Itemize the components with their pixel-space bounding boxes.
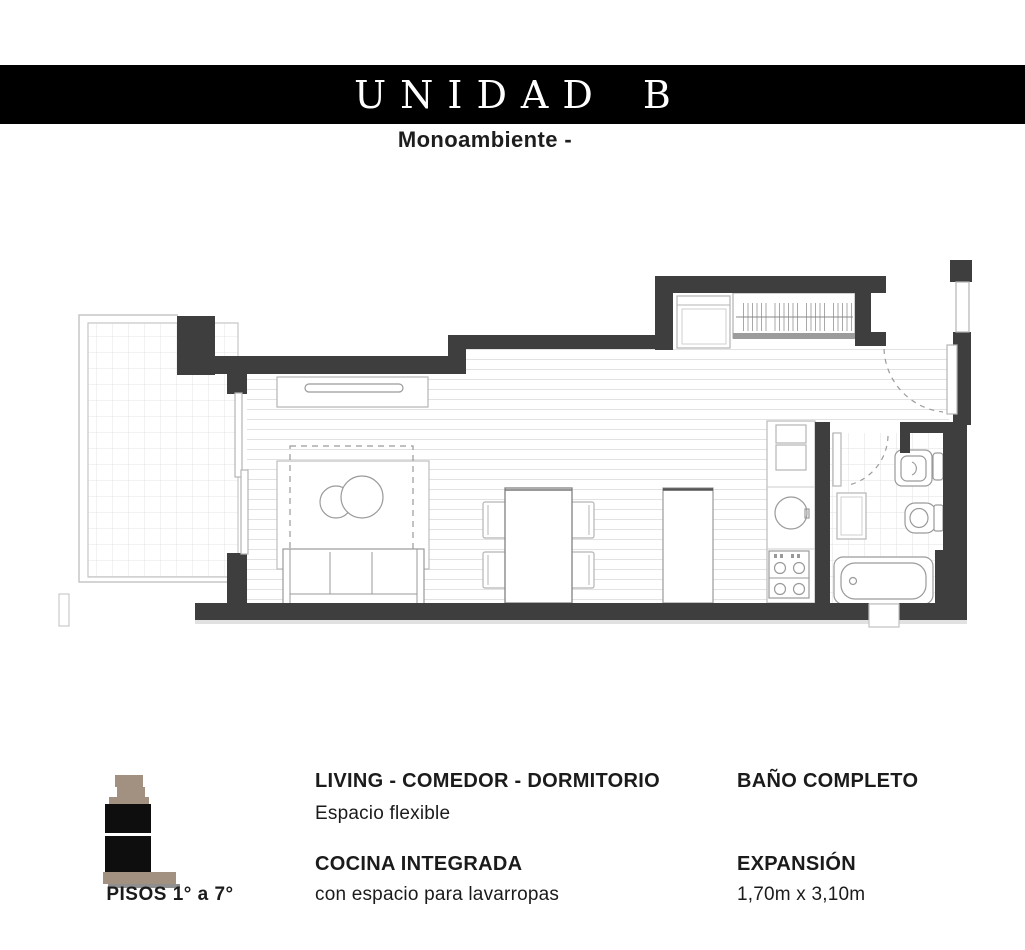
living-feature-title: LIVING - COMEDOR - DORMITORIO	[315, 770, 660, 793]
bathroom-vanity	[837, 493, 866, 539]
bathtub	[834, 557, 933, 604]
living-feature-subtitle: Espacio flexible	[315, 803, 450, 825]
fridge	[776, 425, 806, 470]
expansion-feature-title: EXPANSIÓN	[737, 853, 856, 876]
stove	[769, 551, 809, 598]
building-icon-setback	[109, 797, 149, 804]
dining-table	[505, 488, 572, 603]
kitchen-feature-title: COCINA INTEGRADA	[315, 853, 522, 876]
kitchen-feature-subtitle: con espacio para lavarropas	[315, 884, 559, 906]
building-icon-block-lower	[105, 836, 151, 872]
building-icon-top-level	[115, 775, 143, 787]
exterior-column	[59, 594, 69, 626]
bath-feature-title: BAÑO COMPLETO	[737, 770, 918, 793]
wardrobe-closet	[733, 293, 855, 339]
toilet	[905, 503, 943, 533]
sofa	[283, 549, 424, 604]
kitchen-island	[663, 488, 713, 603]
bathroom-cabinet	[933, 453, 943, 480]
laundry-space	[677, 296, 730, 348]
bathroom-window	[869, 604, 899, 627]
building-icon-upper-level	[117, 787, 145, 797]
kitchen-counter	[767, 421, 815, 603]
console-shelf	[277, 377, 428, 407]
floors-label: PISOS 1° a 7°	[60, 884, 280, 906]
expansion-feature-subtitle: 1,70m x 3,10m	[737, 884, 865, 906]
entry-side-window	[956, 282, 969, 332]
building-icon-block-upper	[105, 804, 151, 833]
floor-plan	[0, 0, 1025, 950]
bathroom-sink	[895, 450, 932, 486]
building-icon-base	[103, 872, 176, 884]
